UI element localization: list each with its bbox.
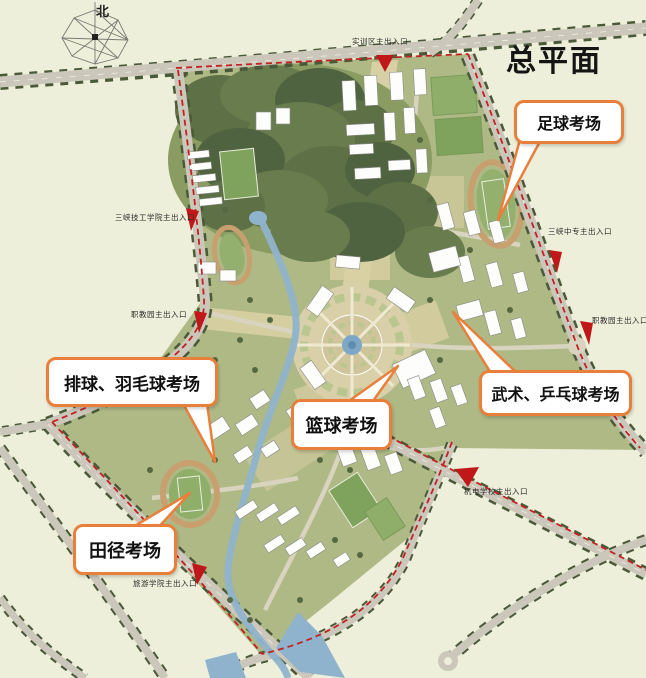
entrance-label-lvyou: 旅游学院主出入口 <box>133 578 197 589</box>
callout-track-field-venue: 田径考场 <box>73 524 177 575</box>
entrance-label-sanxia-zhongzhuan: 三峡中专主出入口 <box>548 226 612 237</box>
entrance-label-sanxia-jigong: 三峡技工学院主出入口 <box>115 212 195 223</box>
north-label: 北 <box>96 1 109 20</box>
campus-master-plan: 总平面 北 实训区主出入口 三峡技工学院主出入口 职教园主出入口 三峡中专主出入… <box>0 0 646 678</box>
callout-football-venue: 足球考场 <box>514 100 624 144</box>
entrance-label-jidian: 机电学校主出入口 <box>464 486 528 497</box>
north-compass-icon <box>62 2 128 64</box>
entrance-label-shixunqu: 实训区主出入口 <box>352 36 408 47</box>
entrance-label-zhijiaoyuan-left: 职教园主出入口 <box>131 309 187 320</box>
callout-volleyball-badminton-venue: 排球、羽毛球考场 <box>46 357 218 407</box>
callout-wushu-pingpong-venue: 武术、乒乓球考场 <box>479 370 632 416</box>
entrance-label-zhijiaoyuan-right: 职教园主出入口 <box>592 315 646 326</box>
tennis-courts-west <box>220 148 259 199</box>
page-title: 总平面 <box>506 36 602 80</box>
callout-basketball-venue: 篮球考场 <box>291 399 392 450</box>
